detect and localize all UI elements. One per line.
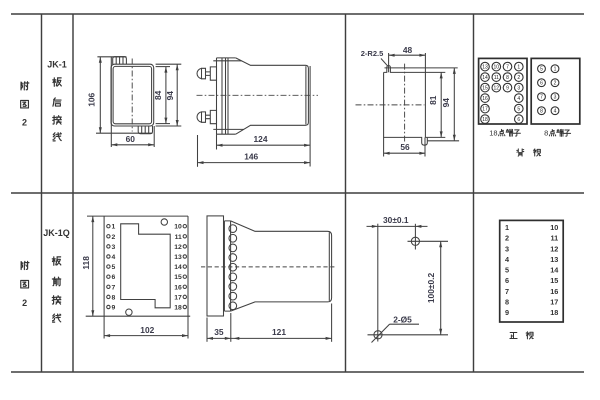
- svg-text:3: 3: [112, 244, 116, 251]
- svg-text:14: 14: [550, 266, 559, 275]
- svg-text:8: 8: [506, 75, 509, 81]
- svg-text:1: 1: [505, 223, 509, 232]
- svg-text:11: 11: [175, 234, 182, 241]
- svg-text:7: 7: [506, 65, 509, 71]
- svg-text:18: 18: [174, 305, 182, 312]
- svg-text:146: 146: [244, 151, 258, 161]
- svg-text:9: 9: [506, 86, 509, 92]
- svg-text:15: 15: [482, 86, 488, 92]
- svg-text:17: 17: [174, 294, 182, 301]
- svg-text:7: 7: [540, 95, 543, 101]
- svg-text:8: 8: [505, 298, 509, 307]
- svg-text:94: 94: [165, 91, 175, 101]
- svg-text:9: 9: [112, 305, 116, 312]
- svg-text:8: 8: [544, 128, 548, 137]
- svg-text:4: 4: [505, 255, 510, 264]
- svg-text:56: 56: [400, 142, 410, 152]
- svg-text:10: 10: [494, 65, 500, 71]
- svg-text:14: 14: [174, 264, 182, 271]
- svg-text:9: 9: [505, 308, 509, 317]
- svg-text:12: 12: [494, 86, 500, 92]
- svg-text:7: 7: [112, 284, 116, 291]
- svg-text:3: 3: [505, 244, 509, 253]
- svg-text:3: 3: [517, 86, 520, 92]
- svg-text:10: 10: [550, 223, 558, 232]
- svg-text:10: 10: [174, 224, 182, 231]
- svg-text:2-Ø5: 2-Ø5: [393, 314, 412, 324]
- svg-text:8: 8: [112, 294, 116, 301]
- svg-text:7: 7: [505, 287, 509, 296]
- svg-text:4: 4: [554, 109, 557, 115]
- svg-text:2: 2: [517, 75, 520, 81]
- svg-text:106: 106: [86, 92, 96, 106]
- svg-text:100±0.2: 100±0.2: [426, 273, 436, 304]
- svg-text:6: 6: [112, 274, 116, 281]
- svg-text:12: 12: [550, 244, 558, 253]
- svg-text:121: 121: [272, 327, 286, 337]
- svg-text:17: 17: [482, 107, 488, 113]
- svg-text:84: 84: [153, 90, 163, 100]
- svg-text:16: 16: [482, 96, 488, 102]
- svg-text:13: 13: [482, 65, 488, 71]
- svg-text:5: 5: [112, 264, 116, 271]
- svg-text:5: 5: [517, 107, 520, 113]
- svg-text:6: 6: [517, 117, 520, 123]
- svg-text:JK-1Q: JK-1Q: [43, 228, 70, 238]
- svg-text:2: 2: [22, 118, 27, 128]
- svg-text:2: 2: [505, 234, 509, 243]
- svg-text:16: 16: [550, 287, 558, 296]
- svg-text:15: 15: [174, 274, 182, 281]
- svg-text:14: 14: [482, 75, 488, 81]
- svg-text:8: 8: [540, 109, 543, 115]
- svg-text:11: 11: [550, 234, 558, 243]
- svg-text:124: 124: [254, 134, 268, 144]
- svg-text:35: 35: [214, 327, 224, 337]
- svg-text:4: 4: [112, 254, 116, 261]
- svg-text:30±0.1: 30±0.1: [383, 215, 409, 225]
- svg-text:2: 2: [112, 234, 116, 241]
- svg-text:1: 1: [517, 65, 520, 71]
- svg-text:5: 5: [540, 67, 543, 73]
- svg-text:6: 6: [540, 81, 543, 87]
- svg-text:4: 4: [517, 96, 520, 102]
- svg-text:18: 18: [482, 117, 488, 123]
- svg-text:17: 17: [550, 298, 558, 307]
- svg-text:2-R2.5: 2-R2.5: [361, 49, 384, 58]
- svg-text:18: 18: [550, 308, 558, 317]
- svg-text:81: 81: [428, 95, 438, 105]
- svg-text:18: 18: [489, 128, 497, 137]
- svg-text:12: 12: [174, 244, 182, 251]
- svg-text:15: 15: [550, 276, 558, 285]
- svg-text:1: 1: [554, 67, 557, 73]
- svg-text:11: 11: [494, 75, 499, 81]
- svg-text:JK-1: JK-1: [47, 60, 67, 70]
- svg-text:2: 2: [22, 298, 27, 308]
- svg-text:13: 13: [550, 255, 558, 264]
- svg-text:118: 118: [81, 256, 91, 270]
- svg-text:5: 5: [505, 266, 509, 275]
- svg-text:94: 94: [441, 98, 451, 108]
- svg-text:16: 16: [174, 284, 182, 291]
- svg-text:2: 2: [554, 81, 557, 87]
- svg-text:1: 1: [112, 224, 116, 231]
- svg-text:60: 60: [126, 134, 136, 144]
- svg-text:102: 102: [140, 325, 154, 335]
- svg-text:6: 6: [505, 276, 509, 285]
- svg-text:3: 3: [554, 95, 557, 101]
- svg-text:48: 48: [403, 45, 413, 55]
- svg-text:13: 13: [174, 254, 182, 261]
